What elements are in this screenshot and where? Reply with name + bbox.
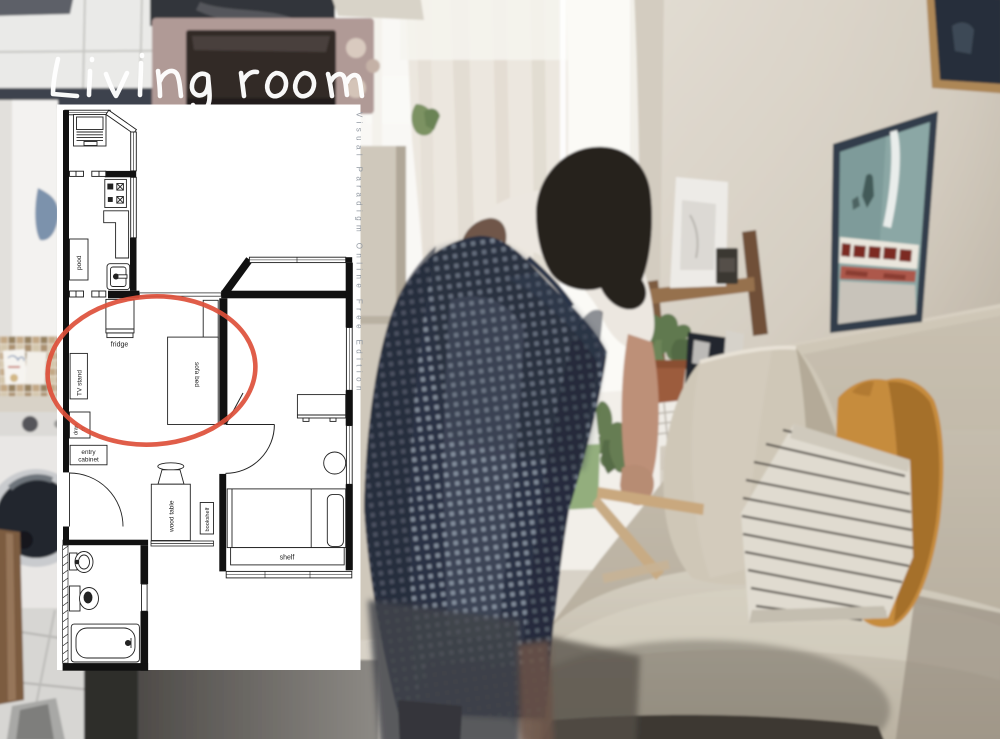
svg-text:cabinet: cabinet: [78, 457, 99, 464]
svg-text:wood table: wood table: [169, 500, 176, 533]
svg-text:bookshelf: bookshelf: [205, 507, 211, 531]
svg-text:entry: entry: [81, 449, 96, 456]
svg-text:pood: pood: [76, 255, 83, 270]
svg-text:Visual Paradigm Online Free Ed: Visual Paradigm Online Free Edition: [355, 112, 364, 395]
svg-text:shelf: shelf: [280, 555, 295, 562]
svg-text:fridge: fridge: [111, 342, 129, 349]
svg-text:sofa bed: sofa bed: [193, 362, 200, 387]
svg-text:TV stand: TV stand: [77, 370, 84, 396]
